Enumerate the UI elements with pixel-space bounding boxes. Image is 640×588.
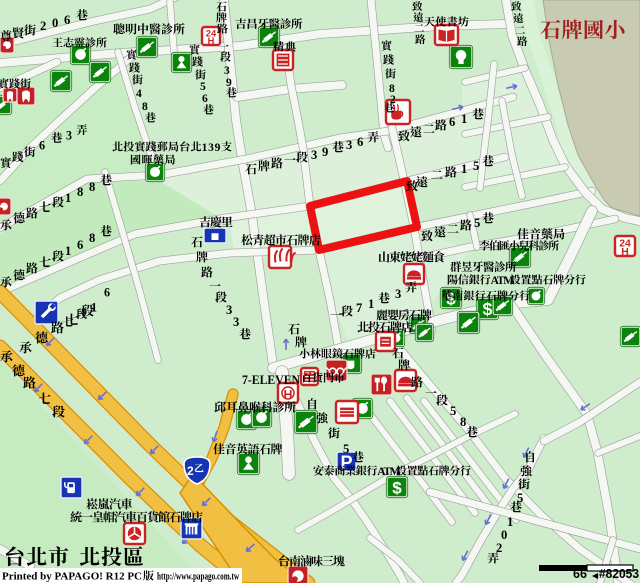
svg-text:6: 6 (39, 139, 45, 153)
svg-text:9: 9 (226, 77, 232, 89)
svg-text:4: 4 (136, 88, 142, 100)
svg-text:$: $ (392, 478, 402, 497)
svg-text:8: 8 (142, 101, 148, 113)
svg-text:0: 0 (52, 16, 58, 30)
svg-text:2: 2 (187, 464, 194, 478)
svg-text:1: 1 (91, 301, 97, 315)
svg-text:9: 9 (215, 142, 221, 154)
svg-text:3: 3 (66, 129, 72, 143)
svg-text:8: 8 (89, 231, 95, 245)
svg-text:3: 3 (395, 287, 401, 301)
svg-text:1: 1 (507, 515, 513, 529)
svg-text:8: 8 (89, 180, 95, 194)
svg-text:H: H (621, 247, 629, 258)
svg-text:H: H (284, 388, 293, 402)
svg-text:6: 6 (449, 115, 455, 129)
svg-text:1: 1 (461, 162, 467, 176)
svg-text:2: 2 (40, 19, 46, 33)
svg-text:1: 1 (202, 142, 208, 154)
svg-text:3: 3 (346, 138, 352, 152)
svg-text:3: 3 (233, 315, 239, 329)
svg-text:6: 6 (202, 93, 208, 105)
svg-text:9: 9 (322, 145, 328, 159)
svg-text:1: 1 (65, 191, 71, 205)
svg-text:5: 5 (200, 81, 206, 93)
svg-text:5: 5 (343, 442, 349, 456)
svg-text:0: 0 (501, 528, 507, 542)
svg-text:6: 6 (77, 238, 83, 252)
svg-text:66: 66 (573, 567, 587, 581)
svg-text:H: H (208, 36, 215, 46)
svg-text:6: 6 (357, 135, 363, 149)
svg-text:1: 1 (65, 244, 71, 258)
svg-text:7: 7 (356, 301, 362, 315)
svg-text:3: 3 (311, 148, 317, 162)
svg-text:5: 5 (474, 216, 480, 230)
svg-text:6: 6 (104, 286, 110, 300)
svg-text:#82053: #82053 (599, 567, 639, 581)
svg-text:1: 1 (368, 297, 374, 311)
svg-text:5: 5 (450, 404, 456, 418)
svg-text:7-ELEVEN: 7-ELEVEN (242, 373, 300, 387)
svg-text:6: 6 (64, 13, 70, 27)
svg-text:5: 5 (473, 159, 479, 173)
svg-text:3: 3 (224, 65, 230, 77)
svg-text:$: $ (483, 299, 493, 319)
svg-text:http://www.papago.com.tw: http://www.papago.com.tw (157, 570, 239, 582)
svg-text:3: 3 (226, 303, 232, 317)
svg-text:3: 3 (208, 142, 214, 154)
svg-text:8: 8 (460, 415, 466, 429)
svg-text:8: 8 (77, 185, 83, 199)
svg-text:1: 1 (461, 112, 467, 126)
svg-text:Printed by PAPAGO! R12 PC: Printed by PAPAGO! R12 PC (2, 570, 142, 582)
